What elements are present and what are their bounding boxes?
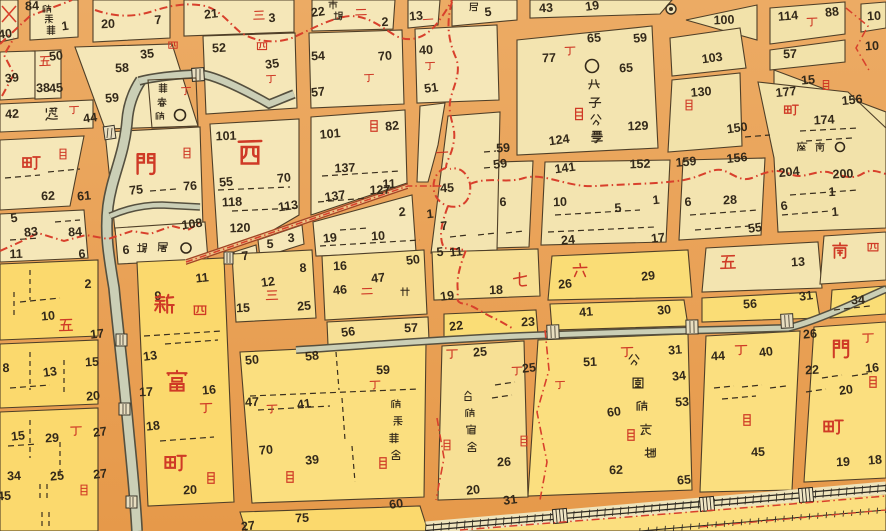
- svg-text:11: 11: [382, 177, 396, 191]
- svg-text:129: 129: [627, 119, 648, 134]
- svg-text:62: 62: [609, 463, 623, 477]
- svg-text:31: 31: [668, 342, 683, 357]
- svg-text:17: 17: [89, 326, 104, 341]
- svg-text:59: 59: [632, 30, 647, 45]
- svg-text:16: 16: [201, 382, 216, 397]
- svg-text:11: 11: [195, 270, 210, 285]
- svg-text:40: 40: [0, 26, 13, 41]
- svg-text:34: 34: [7, 469, 21, 483]
- svg-text:22: 22: [805, 363, 820, 378]
- svg-text:152: 152: [629, 157, 650, 172]
- svg-text:118: 118: [222, 194, 243, 209]
- svg-text:57: 57: [783, 47, 797, 61]
- svg-text:30: 30: [656, 302, 671, 317]
- svg-text:60: 60: [606, 404, 622, 420]
- svg-text:22: 22: [310, 4, 326, 20]
- svg-text:75: 75: [128, 182, 143, 197]
- svg-text:45: 45: [751, 445, 765, 459]
- svg-text:27: 27: [92, 424, 108, 440]
- svg-text:108: 108: [181, 216, 204, 233]
- svg-text:39: 39: [4, 70, 20, 86]
- svg-text:20: 20: [183, 483, 198, 498]
- svg-text:13: 13: [791, 255, 806, 270]
- svg-text:41: 41: [296, 396, 312, 412]
- svg-text:5: 5: [266, 237, 273, 251]
- svg-text:52: 52: [212, 41, 227, 56]
- svg-text:1: 1: [828, 185, 835, 199]
- svg-text:55: 55: [747, 220, 763, 236]
- svg-text:21: 21: [203, 6, 218, 21]
- svg-text:137: 137: [324, 188, 347, 205]
- svg-text:56: 56: [743, 297, 758, 312]
- svg-text:65: 65: [676, 472, 691, 487]
- svg-text:75: 75: [295, 511, 310, 526]
- svg-text:61: 61: [77, 188, 92, 203]
- svg-text:25: 25: [297, 298, 312, 313]
- svg-text:26: 26: [497, 455, 512, 470]
- svg-text:159: 159: [675, 154, 697, 170]
- svg-text:5: 5: [436, 245, 444, 260]
- svg-text:19: 19: [584, 0, 600, 14]
- svg-text:59: 59: [496, 141, 511, 156]
- svg-text:25: 25: [472, 344, 487, 359]
- svg-text:39: 39: [304, 452, 319, 467]
- svg-text:20: 20: [465, 482, 480, 497]
- svg-text:101: 101: [319, 126, 341, 142]
- svg-text:50: 50: [405, 252, 421, 268]
- svg-text:51: 51: [583, 355, 597, 369]
- svg-text:58: 58: [304, 348, 319, 363]
- svg-text:29: 29: [45, 431, 60, 446]
- svg-text:8: 8: [299, 261, 307, 275]
- svg-text:101: 101: [215, 129, 236, 144]
- svg-text:51: 51: [423, 80, 439, 96]
- svg-text:45: 45: [0, 489, 11, 504]
- svg-text:20: 20: [86, 388, 101, 403]
- svg-text:44: 44: [711, 349, 726, 364]
- svg-text:15: 15: [85, 355, 100, 370]
- svg-text:24: 24: [560, 232, 575, 247]
- svg-text:6: 6: [684, 195, 692, 209]
- svg-text:2: 2: [84, 277, 91, 291]
- svg-text:156: 156: [726, 150, 748, 166]
- svg-text:55: 55: [219, 174, 234, 189]
- svg-text:25: 25: [521, 360, 536, 375]
- svg-text:16: 16: [333, 259, 347, 273]
- svg-text:17: 17: [139, 385, 153, 399]
- svg-text:6: 6: [78, 247, 86, 262]
- svg-text:1: 1: [831, 205, 839, 220]
- svg-text:103: 103: [701, 50, 724, 67]
- svg-text:19: 19: [322, 230, 337, 245]
- svg-text:88: 88: [824, 4, 839, 19]
- svg-text:10: 10: [41, 308, 56, 323]
- svg-text:10: 10: [553, 195, 567, 209]
- svg-text:13: 13: [142, 348, 158, 364]
- svg-text:15: 15: [801, 72, 816, 87]
- svg-text:46: 46: [332, 282, 347, 297]
- svg-text:16: 16: [864, 360, 879, 375]
- svg-text:44: 44: [82, 110, 98, 126]
- svg-text:45: 45: [49, 80, 64, 95]
- svg-text:23: 23: [521, 315, 535, 329]
- svg-text:47: 47: [370, 270, 385, 285]
- svg-text:8: 8: [2, 361, 9, 375]
- svg-text:15: 15: [236, 301, 250, 315]
- svg-text:18: 18: [145, 418, 160, 433]
- svg-text:19: 19: [836, 455, 850, 469]
- svg-text:141: 141: [554, 160, 577, 177]
- svg-text:65: 65: [619, 61, 634, 76]
- svg-text:60: 60: [388, 496, 404, 512]
- svg-text:27: 27: [92, 466, 107, 481]
- svg-text:2: 2: [381, 15, 388, 29]
- svg-text:13: 13: [409, 8, 424, 23]
- svg-text:3: 3: [287, 231, 295, 246]
- svg-text:76: 76: [183, 179, 198, 194]
- svg-text:113: 113: [277, 198, 299, 215]
- svg-text:41: 41: [579, 304, 594, 319]
- svg-text:70: 70: [276, 170, 291, 185]
- svg-text:177: 177: [775, 84, 797, 100]
- svg-text:40: 40: [758, 344, 774, 360]
- svg-text:3: 3: [268, 11, 276, 25]
- svg-text:34: 34: [851, 293, 865, 307]
- svg-text:124: 124: [548, 132, 571, 149]
- svg-text:58: 58: [115, 61, 129, 75]
- svg-text:10: 10: [867, 9, 882, 24]
- svg-text:18: 18: [489, 283, 503, 297]
- svg-text:120: 120: [229, 221, 250, 236]
- svg-text:12: 12: [260, 274, 276, 290]
- svg-text:59: 59: [492, 156, 508, 172]
- svg-text:59: 59: [376, 363, 390, 377]
- svg-text:84: 84: [68, 225, 83, 240]
- svg-text:65: 65: [586, 30, 601, 45]
- svg-text:25: 25: [49, 468, 64, 483]
- svg-text:29: 29: [640, 268, 655, 283]
- svg-text:11: 11: [9, 247, 23, 261]
- svg-text:6: 6: [122, 243, 130, 257]
- svg-text:204: 204: [778, 164, 800, 180]
- svg-text:54: 54: [311, 49, 325, 63]
- svg-text:10: 10: [371, 229, 386, 244]
- svg-text:13: 13: [42, 364, 58, 380]
- svg-text:174: 174: [813, 112, 835, 127]
- svg-text:26: 26: [558, 276, 573, 291]
- svg-text:20: 20: [838, 382, 854, 398]
- svg-text:17: 17: [650, 230, 665, 245]
- svg-text:20: 20: [101, 17, 115, 31]
- svg-text:35: 35: [264, 56, 280, 72]
- svg-text:7: 7: [154, 13, 162, 28]
- svg-text:114: 114: [777, 8, 798, 24]
- svg-text:18: 18: [867, 452, 882, 467]
- svg-text:50: 50: [244, 352, 259, 367]
- svg-text:50: 50: [48, 48, 63, 63]
- svg-text:6: 6: [499, 195, 506, 209]
- svg-text:53: 53: [675, 395, 690, 410]
- svg-text:150: 150: [726, 120, 749, 137]
- svg-text:200: 200: [832, 166, 854, 181]
- svg-text:47: 47: [245, 395, 260, 410]
- svg-text:56: 56: [340, 324, 356, 340]
- svg-text:70: 70: [377, 48, 392, 63]
- svg-text:35: 35: [139, 46, 154, 61]
- svg-text:10: 10: [865, 39, 880, 54]
- svg-text:82: 82: [384, 118, 399, 133]
- svg-text:45: 45: [440, 181, 455, 196]
- svg-text:43: 43: [539, 1, 554, 16]
- svg-text:11: 11: [449, 244, 464, 259]
- svg-text:31: 31: [798, 288, 814, 304]
- svg-text:57: 57: [404, 321, 418, 335]
- svg-text:83: 83: [23, 224, 38, 239]
- svg-text:59: 59: [105, 90, 120, 105]
- svg-text:130: 130: [690, 84, 712, 100]
- svg-text:22: 22: [448, 318, 464, 334]
- svg-text:27: 27: [240, 518, 255, 531]
- svg-text:57: 57: [310, 84, 325, 99]
- svg-text:62: 62: [41, 189, 55, 203]
- svg-text:19: 19: [439, 288, 455, 304]
- svg-text:84: 84: [25, 0, 40, 13]
- svg-text:42: 42: [5, 107, 20, 122]
- svg-text:28: 28: [723, 193, 738, 208]
- svg-text:2: 2: [398, 205, 406, 220]
- svg-text:5: 5: [614, 201, 622, 216]
- svg-text:15: 15: [10, 428, 25, 443]
- svg-text:70: 70: [258, 442, 273, 457]
- svg-text:156: 156: [841, 92, 863, 108]
- svg-text:137: 137: [334, 160, 356, 175]
- svg-text:34: 34: [671, 368, 686, 383]
- svg-text:26: 26: [802, 326, 817, 341]
- svg-text:31: 31: [502, 492, 518, 508]
- svg-text:100: 100: [713, 13, 734, 28]
- svg-text:77: 77: [542, 51, 556, 65]
- svg-text:40: 40: [419, 43, 434, 58]
